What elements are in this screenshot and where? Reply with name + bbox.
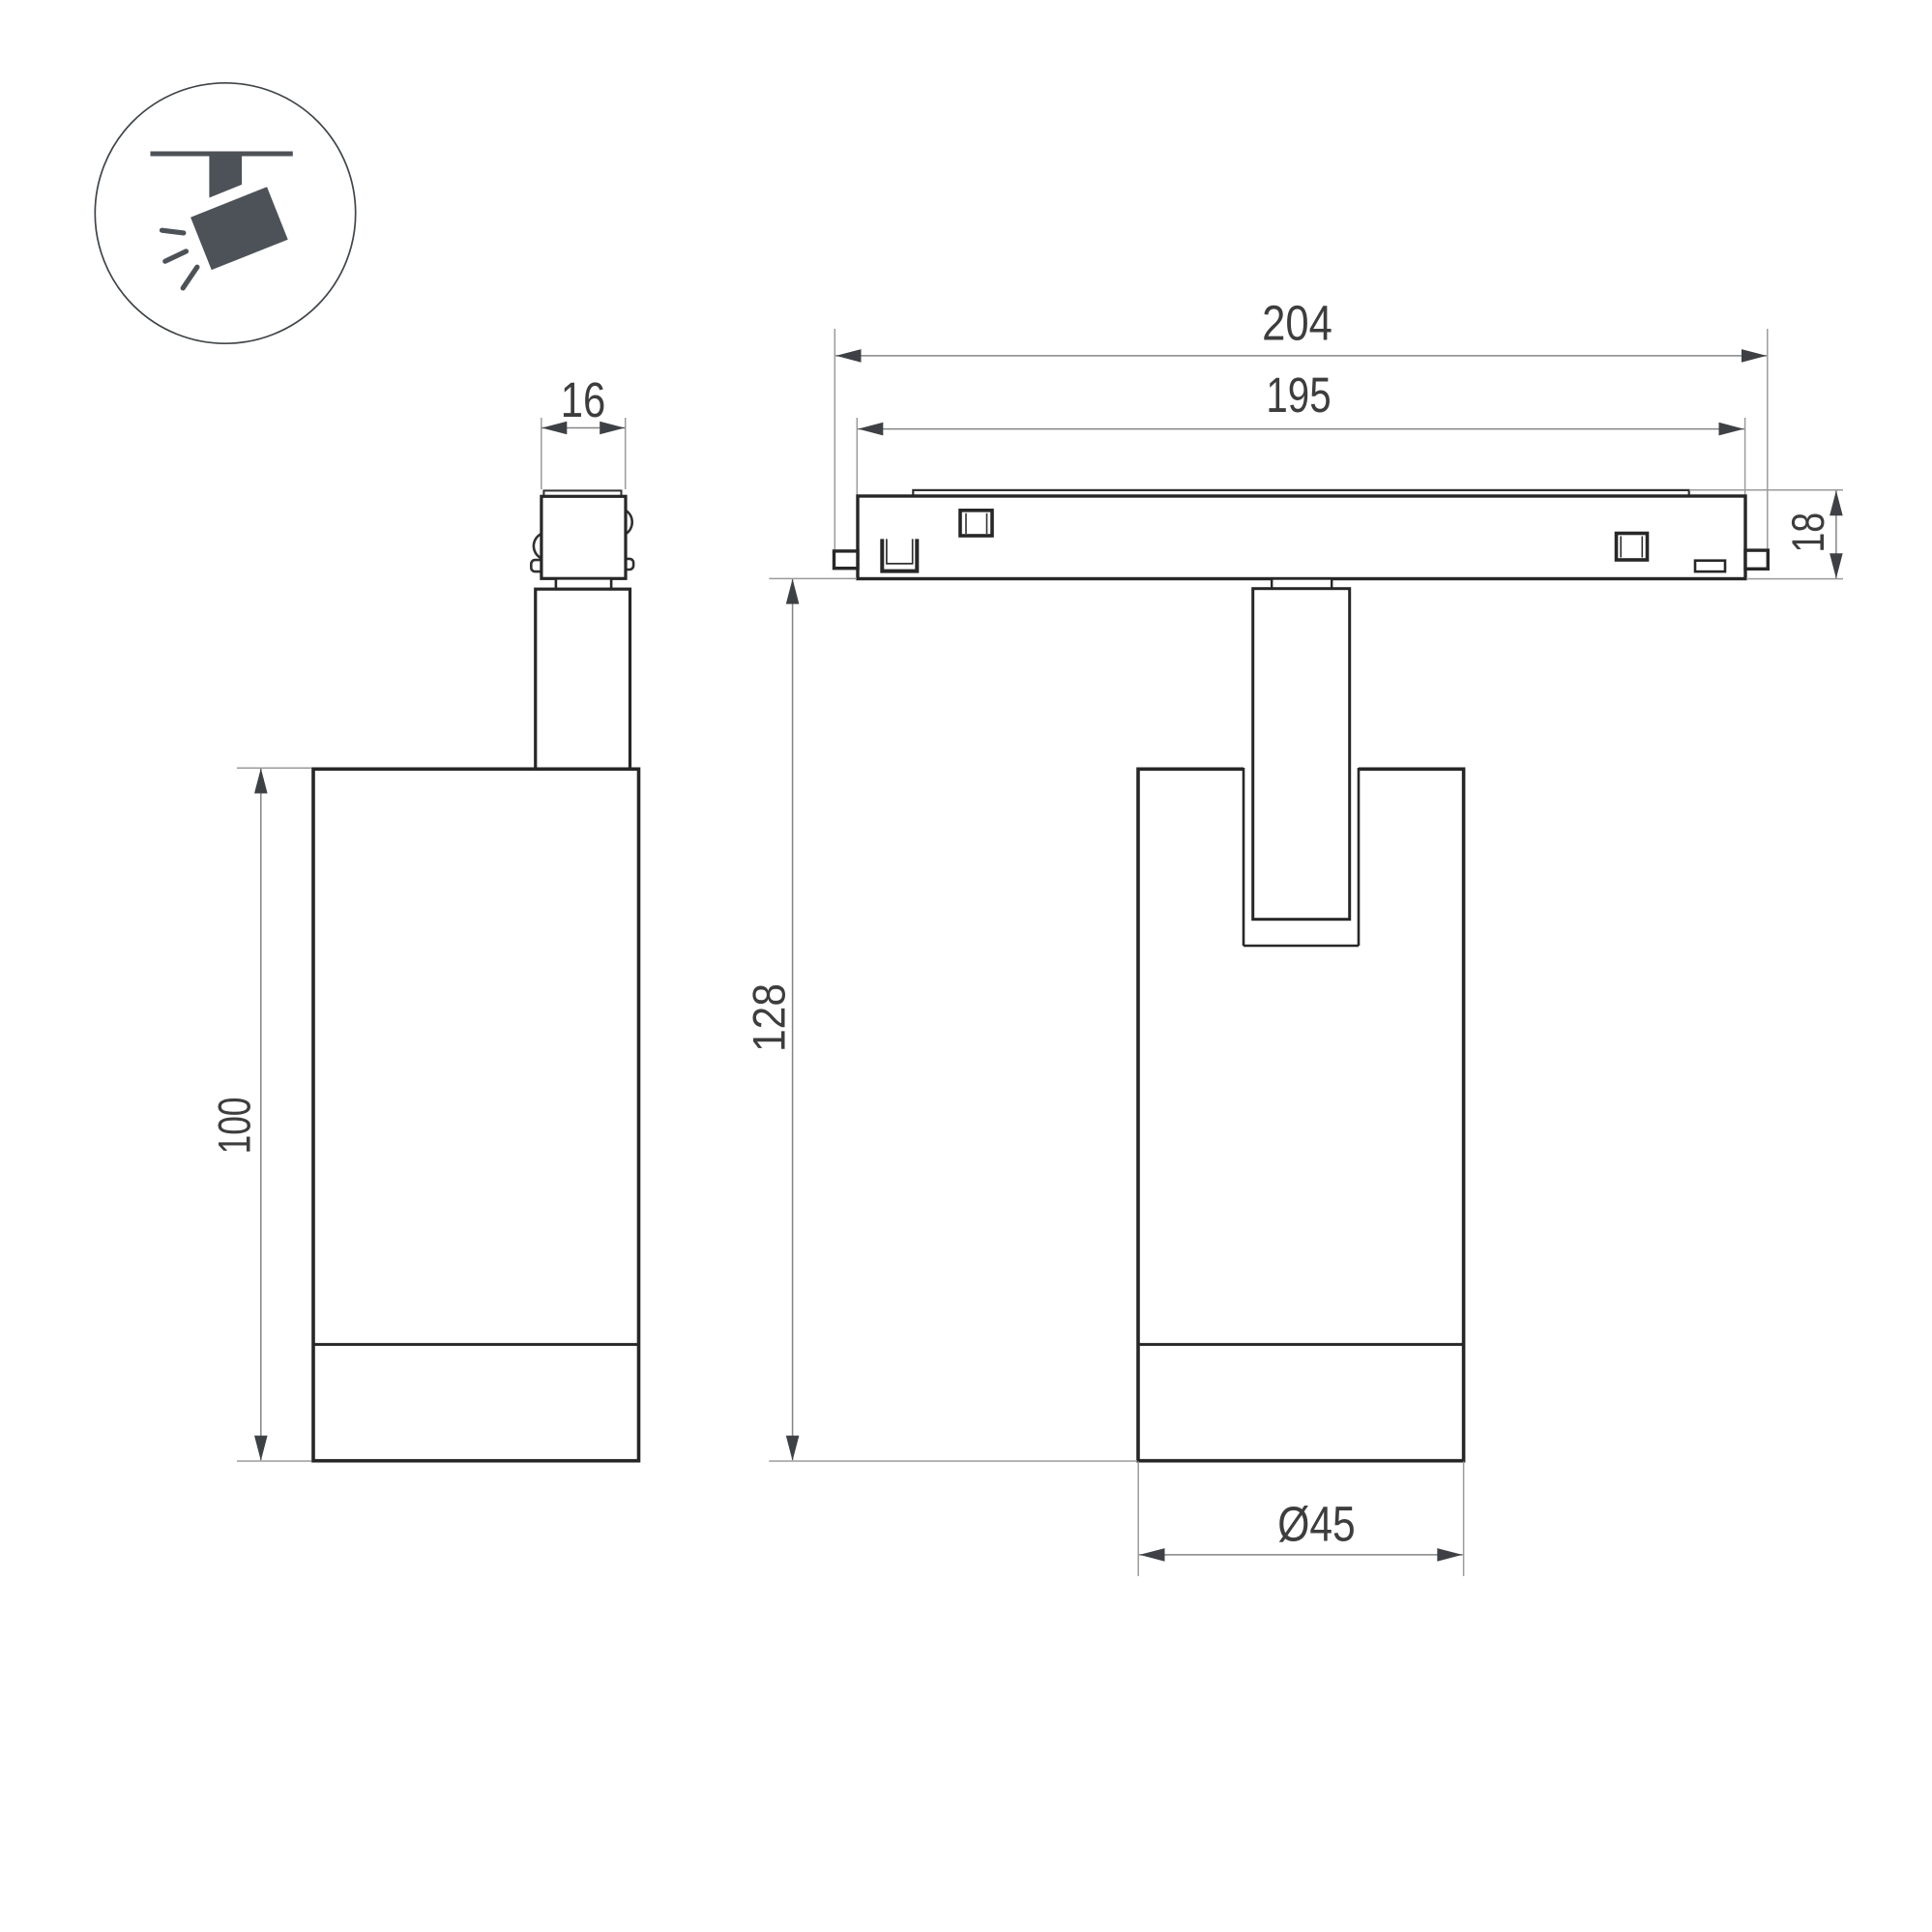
- svg-text:195: 195: [1266, 366, 1331, 423]
- svg-text:204: 204: [1262, 296, 1332, 351]
- svg-text:100: 100: [209, 1098, 260, 1155]
- svg-text:16: 16: [561, 372, 606, 427]
- svg-text:Ø45: Ø45: [1277, 1496, 1355, 1552]
- svg-text:18: 18: [1783, 512, 1834, 553]
- svg-text:128: 128: [745, 983, 795, 1052]
